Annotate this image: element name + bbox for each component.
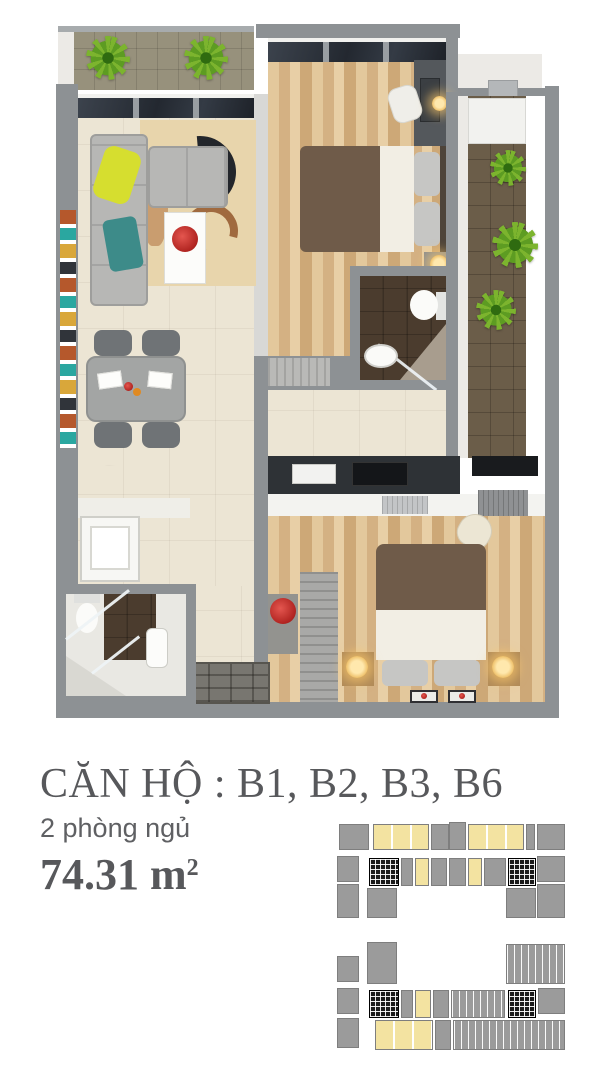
hallway bbox=[268, 390, 446, 456]
highlighted-unit bbox=[468, 858, 482, 886]
highlighted-unit bbox=[415, 990, 431, 1018]
dining-chair bbox=[94, 330, 132, 356]
wall bbox=[545, 86, 559, 704]
highlighted-unit-group bbox=[468, 824, 524, 850]
mat-motif bbox=[421, 693, 427, 699]
building-key-plan-bottom bbox=[337, 942, 565, 1052]
bed1-sheet bbox=[380, 146, 414, 252]
key-plan-unit bbox=[433, 990, 449, 1018]
plant-balcony-left bbox=[86, 36, 130, 80]
plant-balcony bbox=[490, 150, 526, 186]
key-plan-unit bbox=[337, 988, 359, 1014]
area-value: 74.31 m bbox=[40, 850, 187, 899]
napkin bbox=[147, 371, 173, 389]
kitchen-counter bbox=[268, 456, 460, 494]
key-plan-unit bbox=[537, 884, 565, 918]
shower-floor bbox=[400, 324, 446, 380]
balcony-wall-face bbox=[58, 26, 74, 90]
key-plan-unit-row bbox=[453, 1020, 565, 1050]
elevator-core bbox=[508, 990, 536, 1018]
red-flower-ball bbox=[270, 598, 296, 624]
dining-chair bbox=[142, 330, 180, 356]
bed2-blanket bbox=[376, 544, 486, 610]
wardrobe-bedroom2 bbox=[300, 572, 338, 702]
bed-1 bbox=[300, 146, 446, 252]
window-mullion bbox=[383, 42, 389, 62]
key-plan-unit bbox=[337, 1018, 359, 1048]
key-plan-unit bbox=[537, 856, 565, 882]
bed2-sheet bbox=[376, 610, 486, 660]
apartment-title: CĂN HỘ : B1, B2, B3, B6 bbox=[40, 762, 503, 806]
elevator-core bbox=[369, 990, 399, 1018]
plant-balcony bbox=[476, 290, 516, 330]
shower-column bbox=[146, 628, 168, 668]
toilet bbox=[410, 290, 438, 320]
building-key-plan-top bbox=[337, 822, 565, 920]
key-plan-unit bbox=[537, 824, 565, 850]
shower-tray bbox=[66, 656, 126, 696]
key-plan-unit bbox=[538, 988, 565, 1014]
key-plan-unit-row bbox=[451, 990, 505, 1018]
key-plan-unit bbox=[526, 824, 535, 850]
key-plan-unit bbox=[431, 824, 449, 850]
wall bbox=[254, 356, 268, 666]
bedroom1-window bbox=[268, 38, 446, 62]
table-flowers bbox=[172, 226, 198, 252]
key-plan-unit bbox=[449, 822, 466, 850]
key-plan-unit bbox=[367, 942, 397, 984]
mat-motif bbox=[459, 693, 465, 699]
bathroom-1 bbox=[350, 266, 446, 390]
napkin bbox=[97, 370, 123, 389]
table-centerpiece bbox=[124, 382, 133, 391]
sink bbox=[364, 344, 398, 368]
key-plan-unit bbox=[431, 858, 447, 886]
bed2-pillow bbox=[434, 660, 480, 686]
key-plan-unit bbox=[401, 858, 413, 886]
sofa-chaise bbox=[148, 146, 228, 208]
bed1-pillow bbox=[414, 152, 440, 196]
balcony-cabinet bbox=[468, 98, 526, 144]
fruit bbox=[133, 388, 141, 396]
bed1-blanket bbox=[300, 146, 380, 252]
bookshelf bbox=[60, 210, 76, 448]
bed2-pillow bbox=[382, 660, 428, 686]
window-mullion bbox=[133, 98, 139, 118]
window-mullion bbox=[323, 42, 329, 62]
key-plan-unit bbox=[337, 856, 359, 882]
highlighted-unit bbox=[415, 858, 429, 886]
washing-machine bbox=[80, 516, 140, 582]
plant-balcony-right bbox=[184, 36, 228, 80]
key-plan-unit bbox=[435, 1020, 451, 1050]
entry-door-mat bbox=[184, 662, 270, 704]
key-plan-unit bbox=[367, 888, 397, 918]
key-plan-unit bbox=[401, 990, 413, 1018]
dining-chair bbox=[142, 422, 180, 448]
dining-chair bbox=[94, 422, 132, 448]
right-balcony bbox=[468, 96, 526, 458]
bedroom1-door-mat bbox=[268, 358, 330, 386]
oven bbox=[382, 496, 428, 514]
bed1-pillow bbox=[414, 202, 440, 246]
key-plan-unit-row bbox=[506, 944, 565, 984]
kitchen-sink bbox=[292, 464, 336, 484]
floor-plan bbox=[0, 0, 600, 740]
key-plan-unit bbox=[337, 956, 359, 982]
key-plan-unit bbox=[337, 884, 359, 918]
bed-2 bbox=[376, 544, 486, 688]
nightstand-lamp bbox=[346, 656, 368, 678]
highlighted-unit-group bbox=[375, 1020, 433, 1050]
apartment-brochure-page: CĂN HỘ : B1, B2, B3, B6 2 phòng ngủ 74.3… bbox=[0, 0, 600, 1065]
window-mullion bbox=[193, 98, 199, 118]
living-window bbox=[78, 94, 254, 118]
key-plan-unit bbox=[449, 858, 466, 886]
wall bbox=[444, 24, 458, 92]
toilet-tank bbox=[74, 594, 100, 603]
wall bbox=[256, 24, 460, 38]
wall bbox=[254, 94, 268, 356]
wall bbox=[446, 92, 458, 458]
highlighted-unit-group bbox=[373, 824, 429, 850]
elevator-core bbox=[508, 858, 536, 886]
counter-ledge bbox=[78, 498, 190, 518]
laundry-sink-unit bbox=[472, 456, 538, 476]
key-plan-unit bbox=[484, 858, 506, 886]
desk-bedroom2 bbox=[478, 490, 528, 516]
bathroom-2 bbox=[56, 584, 196, 706]
key-plan-unit bbox=[506, 888, 536, 918]
washer-lid bbox=[90, 526, 130, 570]
area-superscript: 2 bbox=[187, 855, 199, 881]
plant-balcony bbox=[492, 222, 538, 268]
elevator-core bbox=[369, 858, 399, 886]
key-plan-unit bbox=[339, 824, 369, 850]
nightstand-lamp bbox=[492, 656, 514, 678]
desk-lamp bbox=[432, 96, 447, 111]
wall-face bbox=[458, 96, 468, 458]
cooktop bbox=[352, 462, 408, 486]
